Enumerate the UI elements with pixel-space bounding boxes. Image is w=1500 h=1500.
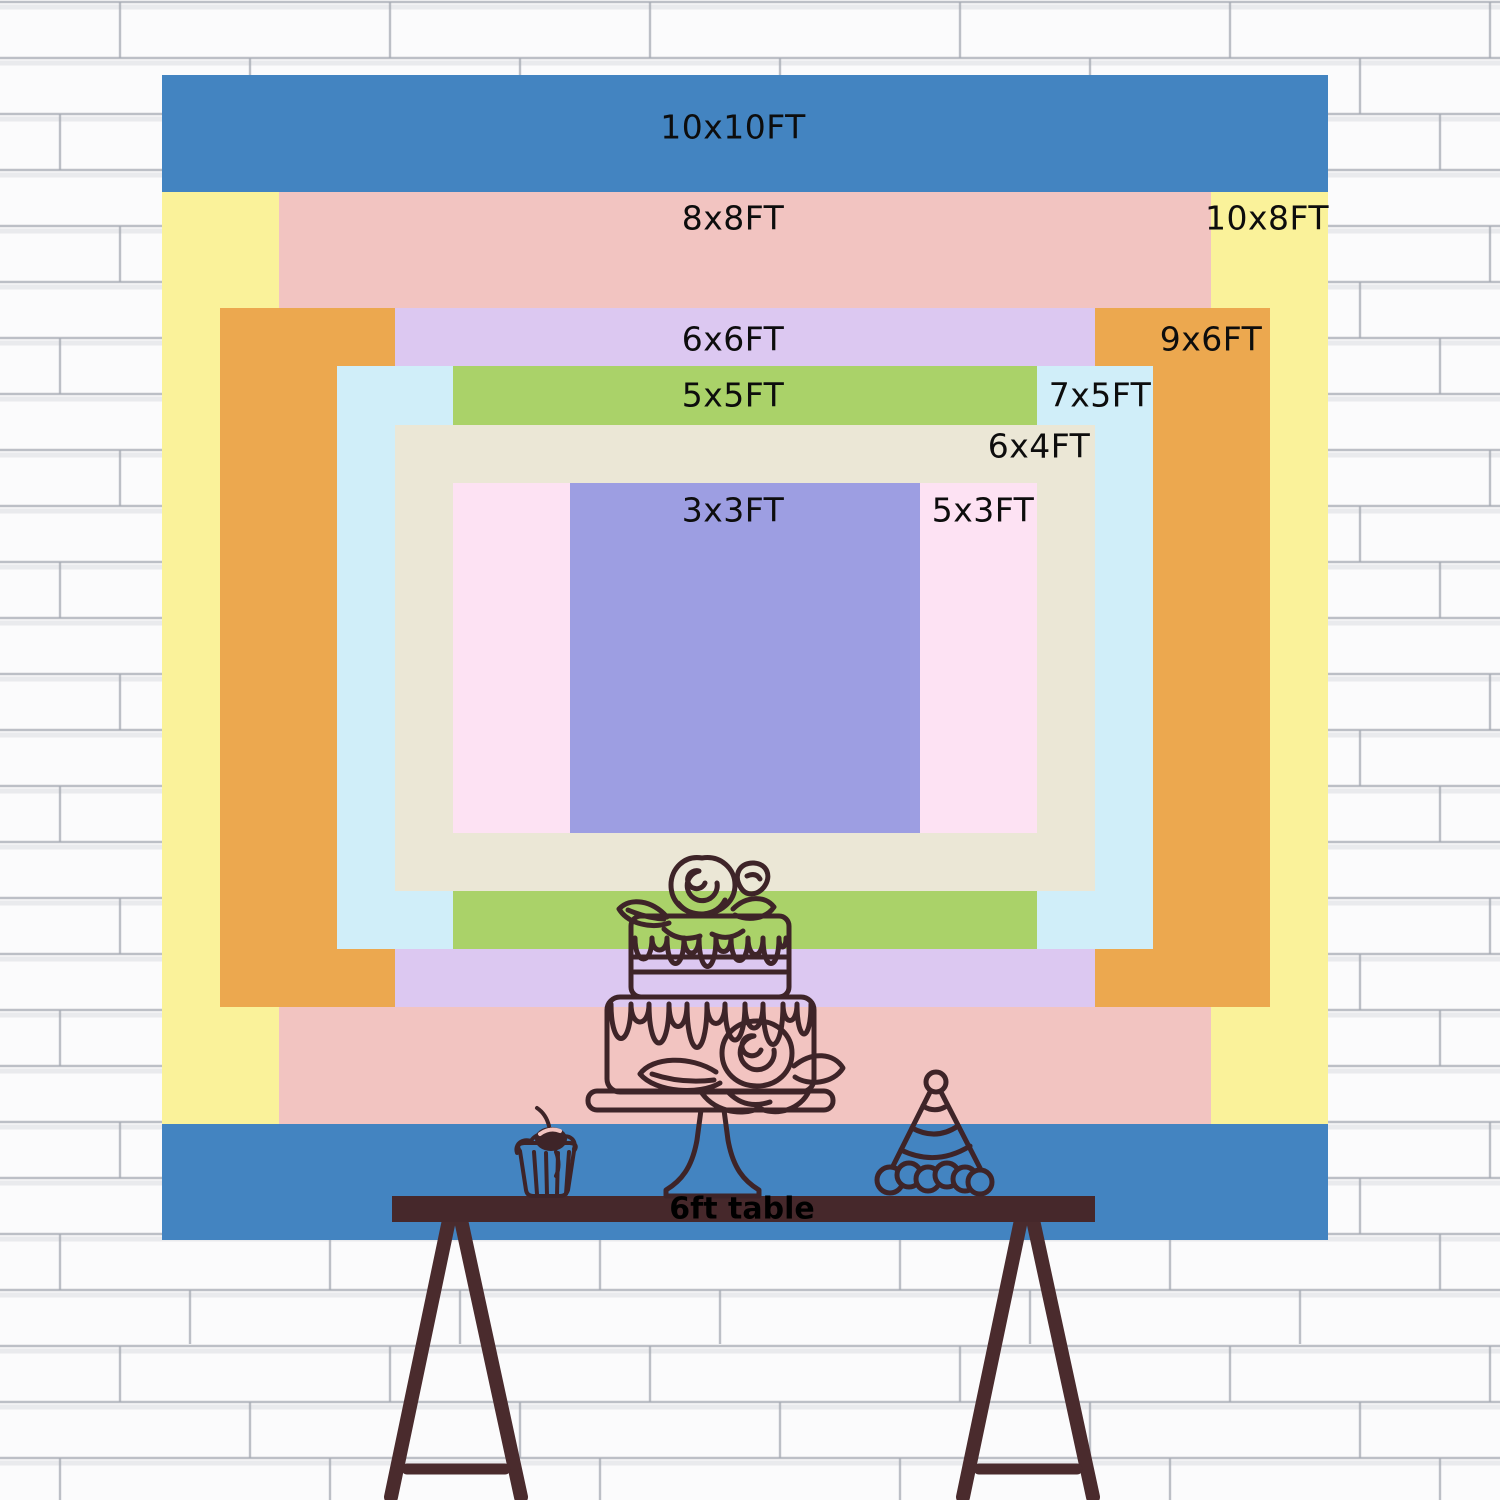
illustrations-overlay (0, 0, 1500, 1500)
trestle-table-icon (391, 1196, 1095, 1497)
cake-icon (588, 858, 843, 1196)
cupcake-icon (516, 1108, 575, 1196)
backdrop-size-chart-image: 10x10FT 8x8FT 10x8FT 6x6FT 9x6FT 5x5FT 7… (0, 0, 1500, 1500)
party-hat-icon (877, 1072, 992, 1194)
table-size-label: 6ft table (669, 1192, 814, 1227)
